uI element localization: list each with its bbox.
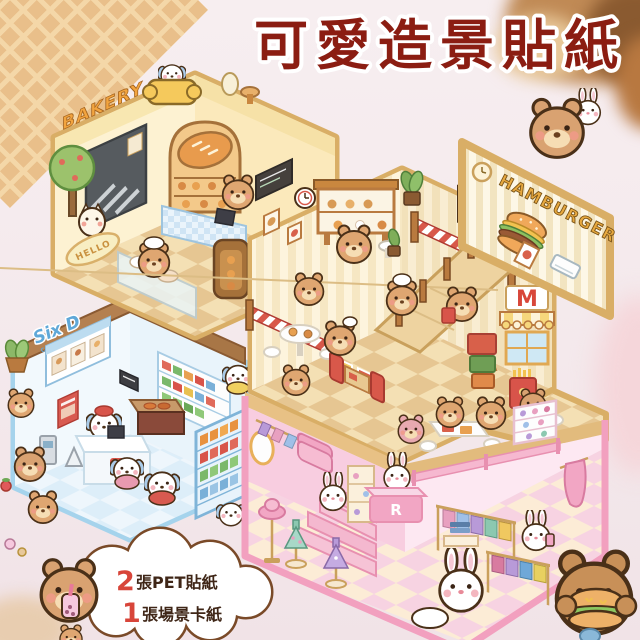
callout-cloud: 2 張PET貼紙 1 張場景卡紙 [41,529,271,640]
bear-diner [282,365,309,395]
pink-bear-diner [398,415,424,443]
chef-hat [393,274,411,286]
bear-shopkeeper [223,175,254,209]
sticker-scenes-illustration: Six D CONVENIENCE STO [0,0,640,640]
candy-sticker [5,539,26,556]
bear-sticker-top-right [531,99,584,157]
sofa-with-puppy [143,65,201,104]
cat-character [79,204,105,236]
red-bag [442,308,455,323]
product-image: Six D CONVENIENCE STO [0,0,640,640]
page-title: 可愛造景貼紙 [254,14,626,77]
exterior-clock [473,163,491,181]
tiny-bear-sticker [60,625,82,640]
bear-sticker [15,447,46,481]
yellow-outfit [227,382,249,394]
white-bow [343,317,357,327]
stacked-boxes [468,334,496,388]
bread-cabinet [214,240,248,298]
red-outfit [149,491,175,505]
accessory-display-case [514,401,556,444]
red-cap [95,406,113,416]
strawberry-sticker [1,478,11,491]
bear-customer [337,226,371,264]
bear-sticker [29,491,58,523]
wall-clock [295,188,315,208]
callout-qty-2: 1 [122,598,141,629]
phone [546,534,554,546]
cash-register [215,209,235,226]
pink-outfit [115,475,139,489]
bear-with-fries [477,397,506,429]
boutique-counter: R [366,488,426,522]
m-arch-sign: M [500,286,554,329]
shop-window [506,332,548,364]
callout-label-2: 張場景卡紙 [142,605,222,624]
bear-sticker [8,389,34,417]
boba-bear-sticker [41,560,97,621]
m-arch-text: M [516,287,538,312]
rabbit-tail [412,608,448,628]
counter-letter: R [390,501,402,519]
bear-diner [436,397,463,427]
callout-qty-1: 2 [116,566,135,597]
bear-diner [295,273,324,305]
chef-hat [144,237,164,249]
callout-label-1: 張PET貼紙 [136,573,218,592]
blue-accessory [580,629,600,640]
hot-food-counter [130,400,184,434]
burger-bear-sticker [556,552,636,640]
wall-mirror [222,73,238,95]
